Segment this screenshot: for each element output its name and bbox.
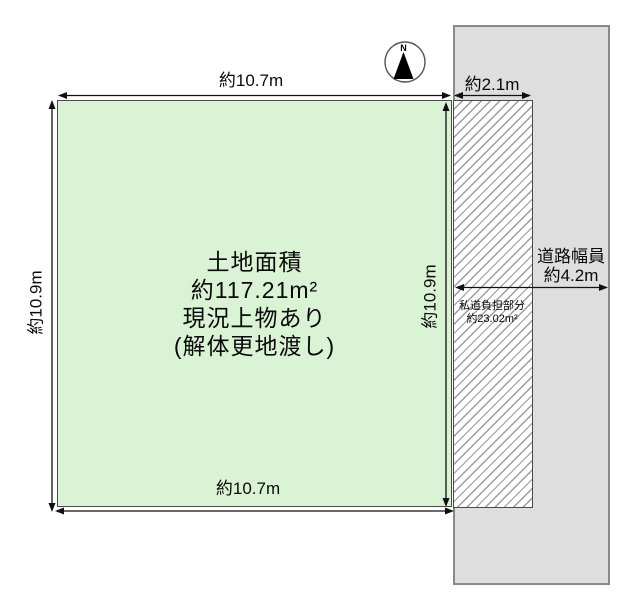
plot-info-line-area-value: 約117.21m² (174, 276, 335, 304)
dimension-label-left-height: 約10.9m (27, 243, 46, 363)
private-road-label: 私道負担部分 約23.02m² (442, 300, 542, 325)
private-road-label-title: 私道負担部分 (442, 300, 542, 313)
dimension-line-bottom-width (55, 508, 454, 515)
land-plot-diagram: 土地面積 約117.21m² 現況上物あり (解体更地渡し) (0, 0, 640, 614)
dimension-label-setback-width: 約2.1m (442, 75, 542, 94)
dimension-label-bottom-width: 約10.7m (188, 479, 308, 498)
compass-circle (385, 42, 425, 82)
private-road-label-value: 約23.02m² (442, 313, 542, 326)
road-width-label-value: 約4.2m (511, 266, 631, 285)
plot-info-line-area-title: 土地面積 (174, 248, 335, 276)
road-width-label-title: 道路幅員 (511, 247, 631, 266)
land-plot-area: 土地面積 約117.21m² 現況上物あり (解体更地渡し) (57, 100, 452, 507)
plot-info-line-handover: (解体更地渡し) (174, 332, 335, 360)
north-arrow-icon (394, 52, 414, 79)
plot-info-line-status: 現況上物あり (174, 304, 335, 332)
plot-info-text: 土地面積 約117.21m² 現況上物あり (解体更地渡し) (174, 248, 335, 360)
dimension-label-top-width: 約10.7m (191, 71, 311, 90)
road-width-label: 道路幅員 約4.2m (511, 247, 631, 285)
compass-north-arrow: N (385, 42, 425, 82)
compass-north-letter: N (400, 43, 407, 53)
dimension-line-left-height (49, 100, 56, 512)
dimension-line-top-width (58, 92, 451, 99)
dimension-label-right-height: 約10.9m (421, 237, 440, 357)
